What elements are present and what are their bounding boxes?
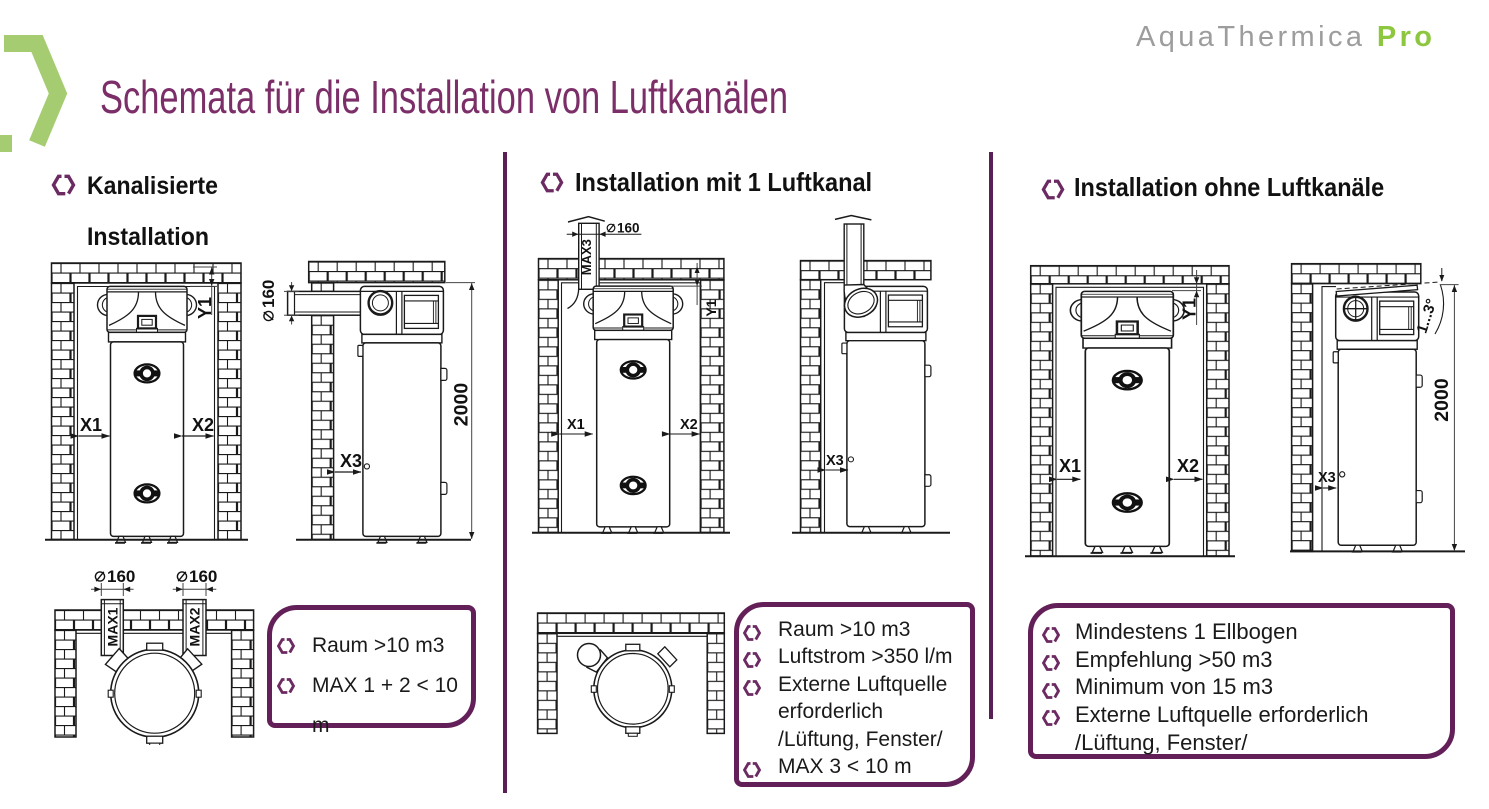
svg-text:2000: 2000 — [451, 383, 473, 427]
svg-text:Y1: Y1 — [703, 299, 719, 316]
svg-text:MAX1: MAX1 — [104, 607, 120, 646]
svg-text:X2: X2 — [680, 417, 698, 433]
svg-text:160: 160 — [189, 567, 217, 586]
svg-text:X1: X1 — [567, 417, 585, 433]
svg-text:X2: X2 — [192, 415, 214, 435]
svg-text:X1: X1 — [1059, 456, 1081, 476]
svg-text:MAX3: MAX3 — [579, 239, 594, 275]
svg-text:2000: 2000 — [1431, 378, 1453, 422]
svg-text:X2: X2 — [1177, 456, 1199, 476]
svg-text:X3: X3 — [340, 451, 362, 471]
svg-text:MAX2: MAX2 — [187, 607, 203, 646]
svg-text:160: 160 — [617, 221, 640, 236]
svg-text:Y1: Y1 — [1180, 298, 1200, 320]
svg-text:Y1: Y1 — [195, 297, 215, 319]
svg-text:X3: X3 — [826, 453, 844, 469]
svg-text:X3: X3 — [1318, 470, 1336, 486]
svg-text:160: 160 — [259, 280, 278, 308]
svg-text:160: 160 — [107, 567, 135, 586]
svg-text:X1: X1 — [80, 415, 102, 435]
